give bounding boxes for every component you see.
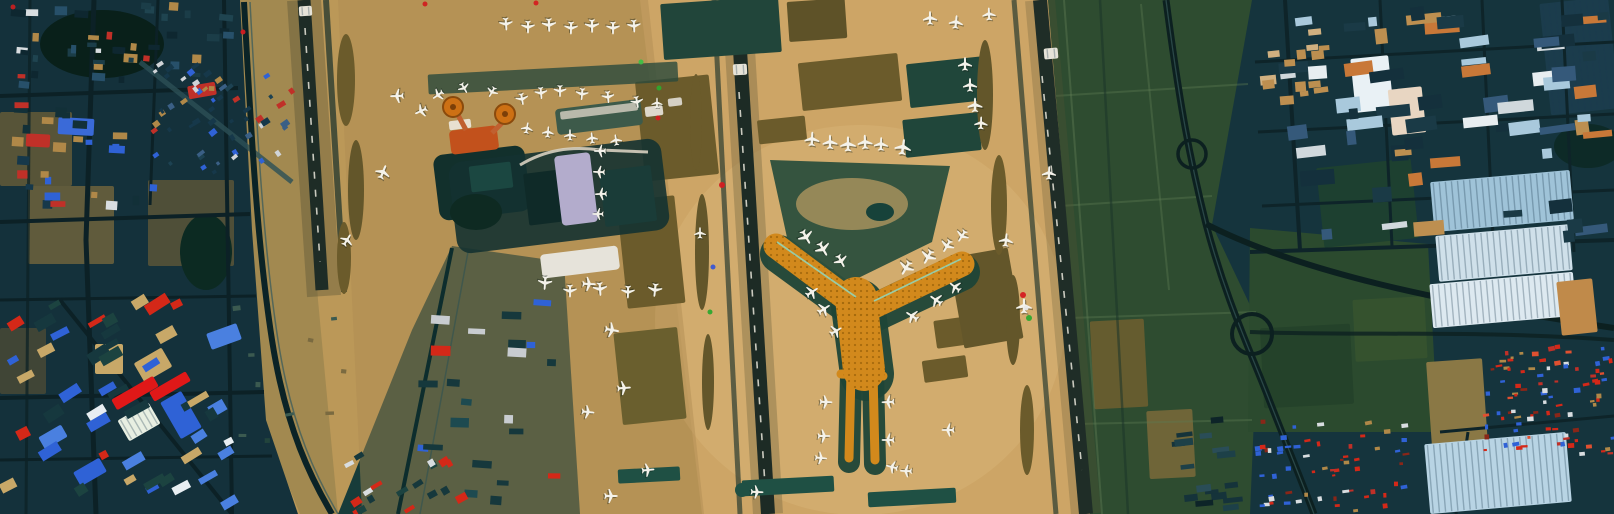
- village-east: [1511, 410, 1516, 414]
- building: [1372, 187, 1392, 203]
- building: [1497, 411, 1501, 415]
- village-south: [1370, 489, 1375, 494]
- building: [548, 473, 560, 478]
- building: [1360, 434, 1365, 437]
- warehouse-tan: [1556, 278, 1597, 335]
- grass-lens: [690, 74, 702, 170]
- building: [88, 35, 99, 40]
- roof-ridge: [1047, 49, 1048, 58]
- building-red: [26, 133, 51, 147]
- building: [1563, 364, 1568, 368]
- building: [32, 33, 39, 42]
- building: [1484, 449, 1487, 451]
- building: [1520, 388, 1527, 391]
- blocks-midwest: [133, 196, 139, 205]
- t3-pond: [866, 203, 894, 221]
- village-east: [1547, 366, 1550, 370]
- homes-northwest: [209, 86, 215, 91]
- building: [447, 379, 460, 387]
- building: [1346, 130, 1357, 145]
- village-east: [1484, 449, 1487, 451]
- building: [1384, 429, 1391, 434]
- building: [1340, 459, 1343, 461]
- blocks-midwest: [17, 156, 30, 166]
- building: [1503, 210, 1522, 218]
- marker-speck: [719, 182, 725, 188]
- building: [1507, 397, 1513, 400]
- building: [1579, 452, 1585, 456]
- threshold-markings: [1044, 47, 1059, 59]
- homes-northwest: [161, 14, 168, 21]
- infield: [787, 0, 848, 42]
- village-east: [1611, 436, 1614, 439]
- homes-northwest: [128, 57, 133, 62]
- dirt-strip-sheds: [232, 305, 240, 311]
- building: [1382, 503, 1387, 508]
- village-south: [1401, 423, 1408, 428]
- building: [1368, 17, 1377, 27]
- village-east: [1499, 360, 1506, 363]
- homes-northwest: [32, 33, 39, 42]
- building: [11, 9, 27, 17]
- village-east: [1596, 393, 1601, 398]
- building: [1567, 218, 1583, 233]
- building: [128, 57, 133, 62]
- building: [106, 201, 118, 211]
- village-south: [1260, 504, 1265, 507]
- homes-northwest: [20, 50, 29, 56]
- village-east: [1537, 374, 1544, 378]
- building: [423, 444, 443, 451]
- building: [112, 47, 120, 54]
- building: [1335, 504, 1340, 507]
- building: [472, 460, 492, 469]
- building: [507, 347, 526, 357]
- parking-rows: [469, 162, 514, 193]
- building: [141, 2, 152, 9]
- warehouse-district-east: [1410, 6, 1425, 21]
- building: [14, 102, 28, 108]
- building: [1511, 410, 1516, 414]
- village-south: [1317, 422, 1324, 426]
- building: [1590, 374, 1596, 377]
- homes-northwest: [33, 55, 39, 62]
- warehouse-district-east: [1549, 198, 1573, 214]
- village-south: [1382, 503, 1387, 508]
- orange-compound: [1295, 81, 1306, 92]
- village-east: [1586, 444, 1592, 448]
- warehouse-district-east: [1404, 137, 1423, 151]
- building: [1565, 350, 1571, 353]
- satellite-terminal-core: [502, 111, 508, 117]
- infield: [902, 112, 982, 158]
- building: [185, 10, 191, 18]
- building: [509, 429, 523, 435]
- building: [55, 107, 67, 118]
- tech-zone-sheds: [450, 418, 469, 428]
- building: [45, 193, 61, 201]
- building: [17, 156, 30, 166]
- building: [106, 32, 112, 40]
- village-south: [1312, 470, 1316, 473]
- village-south: [1330, 469, 1336, 472]
- building: [91, 192, 97, 198]
- building: [55, 6, 68, 15]
- building: [119, 76, 125, 83]
- warehouse-district-east: [1561, 13, 1584, 27]
- building: [1527, 436, 1530, 439]
- threshold-markings: [1044, 47, 1059, 59]
- marker-speck: [1020, 292, 1026, 298]
- village-east: [1595, 369, 1599, 373]
- building: [33, 55, 39, 62]
- building: [431, 346, 451, 356]
- building: [1593, 403, 1597, 407]
- building: [1312, 470, 1316, 473]
- building: [1268, 496, 1274, 502]
- building: [1370, 489, 1375, 494]
- building: [1511, 356, 1514, 359]
- marker-speck: [639, 60, 644, 65]
- building: [1542, 388, 1548, 393]
- building: [1577, 114, 1591, 122]
- warehouse-district-east: [1577, 114, 1591, 122]
- homes-northwest: [223, 32, 234, 39]
- building: [1399, 462, 1403, 465]
- building: [504, 415, 513, 424]
- building: [1528, 367, 1535, 370]
- building: [26, 9, 39, 16]
- village-south: [1268, 448, 1272, 453]
- building: [1394, 482, 1398, 487]
- dirt-patch: [0, 328, 46, 394]
- village-south: [1268, 496, 1274, 502]
- factory-roof: [1424, 432, 1572, 514]
- marker-speck: [423, 2, 428, 7]
- blocks-midwest: [109, 145, 125, 153]
- building: [74, 10, 88, 18]
- village-east: [1513, 429, 1518, 433]
- building: [50, 201, 65, 207]
- building: [169, 2, 179, 11]
- homes-northwest: [141, 2, 152, 9]
- tech-zone-sheds: [423, 444, 443, 451]
- building: [1552, 428, 1558, 431]
- tech-zone-sheds: [547, 359, 556, 366]
- building: [1293, 445, 1300, 449]
- village-east: [1515, 384, 1521, 388]
- building: [1499, 360, 1506, 363]
- building: [1586, 444, 1592, 448]
- infield: [787, 0, 848, 42]
- marker-speck: [708, 310, 713, 315]
- building: [1267, 50, 1279, 58]
- village-south: [1355, 466, 1361, 471]
- orange-compound: [1267, 50, 1279, 58]
- warehouse-district-east: [1582, 51, 1596, 62]
- warehouse-district-east: [1542, 148, 1553, 159]
- blocks-midwest: [42, 117, 54, 124]
- building: [12, 137, 24, 147]
- airside-building: [668, 97, 683, 107]
- building: [461, 398, 472, 405]
- building: [1259, 474, 1264, 477]
- grass-lens: [337, 222, 351, 294]
- village-south: [1394, 482, 1398, 487]
- building: [1555, 344, 1561, 349]
- building: [1521, 445, 1528, 448]
- infield: [613, 327, 686, 425]
- building: [223, 32, 234, 39]
- building: [1319, 45, 1330, 51]
- building: [1437, 15, 1465, 29]
- homes-northwest: [31, 71, 38, 79]
- building: [490, 496, 502, 506]
- blocks-midwest: [17, 170, 27, 178]
- building: [42, 117, 54, 124]
- building: [71, 45, 76, 54]
- village-east: [1605, 447, 1610, 451]
- village-south: [1360, 434, 1365, 437]
- village-east: [1573, 428, 1580, 433]
- tech-zone-sheds: [468, 328, 485, 334]
- village-south: [1255, 451, 1261, 456]
- building: [468, 328, 485, 334]
- blocks-midwest: [22, 125, 30, 134]
- building: [1600, 372, 1604, 375]
- village-south: [1335, 504, 1340, 507]
- blocks-midwest: [86, 140, 93, 145]
- building: [167, 32, 178, 39]
- infield: [660, 0, 782, 60]
- apartment-rows: [1211, 416, 1224, 423]
- warehouse-district-east: [1567, 218, 1583, 233]
- building: [1304, 493, 1308, 497]
- building: [1551, 66, 1576, 82]
- building: [248, 353, 254, 357]
- building: [1401, 423, 1408, 428]
- village-east: [1546, 427, 1551, 430]
- village-south: [1277, 446, 1284, 452]
- tech-zone-sheds: [509, 429, 523, 435]
- building: [1260, 445, 1266, 450]
- building: [17, 170, 27, 178]
- building: [1287, 124, 1308, 141]
- homes-northwest: [18, 81, 29, 89]
- marker-speck: [656, 116, 661, 121]
- tech-zone-sheds: [490, 496, 502, 506]
- building: [1549, 198, 1573, 214]
- building: [1601, 347, 1605, 351]
- warehouse-district-east: [1408, 172, 1423, 186]
- building: [18, 74, 26, 79]
- homes-northwest: [192, 54, 201, 63]
- warehouse-district-east: [1349, 108, 1359, 119]
- village-east: [1505, 351, 1509, 356]
- building: [1537, 374, 1544, 378]
- building: [1515, 384, 1521, 388]
- building: [1595, 380, 1601, 385]
- homes-northwest: [92, 73, 106, 82]
- homes-northwest: [185, 10, 191, 18]
- village-east: [1520, 388, 1527, 391]
- satellite-terminal-core: [450, 104, 456, 110]
- village-east: [1595, 380, 1601, 385]
- tech-zone-sheds: [497, 480, 509, 486]
- tech-zone-sheds: [548, 473, 560, 478]
- threshold-markings: [733, 64, 748, 76]
- building: [1547, 366, 1550, 370]
- village-east: [1590, 374, 1596, 377]
- blocks-midwest: [113, 132, 127, 139]
- roof-ridge: [302, 7, 303, 15]
- building: [1408, 172, 1423, 186]
- orange-compound: [1308, 80, 1321, 88]
- homes-northwest: [88, 35, 99, 40]
- building: [1280, 435, 1287, 440]
- village-east: [1574, 387, 1581, 393]
- building: [1211, 416, 1224, 423]
- village-south: [1349, 444, 1353, 449]
- building: [1560, 441, 1565, 446]
- parking-rows: [469, 162, 514, 193]
- village-east: [1554, 380, 1558, 382]
- village-east: [1593, 403, 1597, 407]
- warehouse-district-east: [1437, 15, 1465, 29]
- village-south: [1292, 425, 1296, 429]
- building: [1277, 446, 1284, 452]
- village-south: [1333, 496, 1336, 501]
- village-east: [1568, 412, 1573, 417]
- homes-northwest: [119, 76, 125, 83]
- building: [72, 120, 87, 129]
- satellite-image: [0, 0, 1614, 514]
- building: [547, 359, 556, 366]
- building: [1344, 460, 1350, 464]
- building: [143, 55, 150, 61]
- homes-northwest: [112, 47, 120, 54]
- building: [207, 34, 220, 42]
- building: [1520, 370, 1524, 373]
- field-patch: [1260, 324, 1354, 409]
- building: [1349, 444, 1353, 449]
- building: [1255, 451, 1261, 456]
- building: [1284, 501, 1291, 504]
- grass-lens: [695, 194, 709, 310]
- building: [1582, 51, 1596, 62]
- building: [1532, 351, 1539, 356]
- building: [1321, 229, 1332, 240]
- tech-zone-sheds: [431, 315, 450, 325]
- village-east: [1521, 445, 1528, 448]
- building: [1317, 496, 1322, 501]
- building: [1575, 439, 1579, 442]
- blocks-midwest: [25, 184, 33, 190]
- building: [1533, 411, 1538, 414]
- building: [1355, 466, 1361, 471]
- tree-cluster: [180, 214, 232, 290]
- dirt-strip-sheds: [331, 317, 337, 321]
- village-south: [1401, 438, 1406, 442]
- warehouse-district-east: [1597, 12, 1609, 20]
- building: [1595, 369, 1599, 373]
- building: [533, 299, 551, 306]
- village-south: [1259, 474, 1264, 477]
- warehouse-district-east: [1321, 229, 1332, 240]
- village-east: [1532, 351, 1539, 356]
- village-east: [1579, 452, 1585, 456]
- village-east: [1514, 394, 1517, 397]
- taxi-island-round: [735, 483, 749, 497]
- warehouse-district-east: [1344, 22, 1366, 32]
- building: [1574, 387, 1581, 393]
- building: [1507, 368, 1510, 372]
- building: [1272, 474, 1277, 480]
- building: [1519, 352, 1523, 355]
- building: [1574, 84, 1597, 99]
- building: [25, 184, 33, 190]
- building: [1516, 422, 1521, 425]
- village-east: [1528, 367, 1535, 370]
- building: [92, 73, 106, 82]
- village-south: [1280, 435, 1287, 440]
- building: [133, 196, 139, 205]
- marker-speck: [657, 86, 662, 91]
- village-east: [1484, 434, 1489, 439]
- village-south: [1317, 496, 1322, 501]
- blocks-midwest: [12, 137, 24, 147]
- village-east: [1568, 443, 1575, 448]
- marker-speck: [11, 5, 16, 10]
- homes-northwest: [167, 32, 178, 39]
- building: [1596, 393, 1601, 398]
- building: [1292, 425, 1296, 429]
- building: [149, 184, 157, 191]
- building: [1546, 427, 1551, 430]
- building: [109, 145, 125, 153]
- warehouse-district-east: [1551, 66, 1576, 82]
- homes-northwest: [55, 6, 68, 15]
- building: [1300, 169, 1335, 187]
- tech-zone-sheds: [504, 415, 513, 424]
- building: [1261, 420, 1266, 424]
- dirt-strip-sheds: [248, 353, 254, 357]
- building: [1513, 429, 1518, 433]
- building: [431, 315, 450, 325]
- homes-northwest: [71, 45, 76, 54]
- building: [1543, 400, 1547, 404]
- building: [1575, 367, 1579, 371]
- tech-zone-sheds: [502, 311, 522, 319]
- village-east: [1595, 361, 1600, 366]
- building: [1568, 412, 1573, 417]
- dirt-patch: [28, 186, 114, 264]
- building: [1561, 13, 1584, 27]
- village-east: [1516, 422, 1521, 425]
- warehouse-district-east: [1503, 210, 1522, 218]
- building: [45, 177, 51, 185]
- building: [1317, 422, 1324, 426]
- building: [161, 14, 168, 21]
- village-south: [1383, 493, 1386, 498]
- village-south: [1286, 466, 1291, 471]
- building: [1333, 496, 1336, 501]
- building: [502, 311, 522, 319]
- building: [1262, 79, 1275, 89]
- village-east: [1511, 356, 1514, 359]
- dirt-strip-sheds: [255, 382, 260, 387]
- building: [239, 434, 247, 437]
